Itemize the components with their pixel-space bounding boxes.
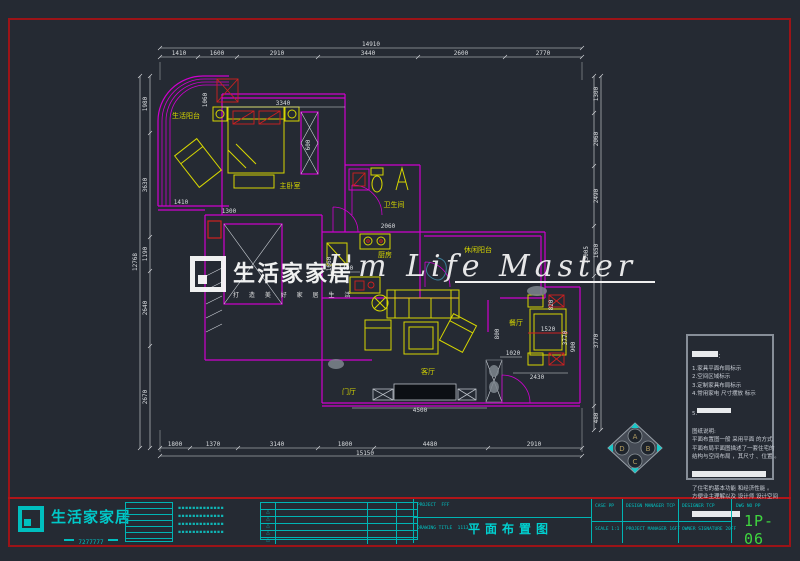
svg-text:3770: 3770 xyxy=(593,333,600,348)
svg-text:1060: 1060 xyxy=(202,92,209,107)
svg-text:1980: 1980 xyxy=(142,96,149,111)
notes-line: 了住宅的基本功能 和经济性能 。 xyxy=(692,485,768,493)
svg-text:4480: 4480 xyxy=(423,441,438,448)
redacted-block xyxy=(697,408,731,413)
svg-text:3630: 3630 xyxy=(142,177,149,192)
titleblock-brand-text: 生活家家居 xyxy=(51,506,131,527)
legend-item: 1.家具平面布局标示 xyxy=(692,365,768,373)
dash-decor xyxy=(64,539,74,541)
divider xyxy=(731,499,732,543)
notes-line: 平面布置图一般 采用平面 的方式 xyxy=(692,436,768,444)
label-living: 客厅 xyxy=(421,367,435,376)
watermark-tagline: 打 造 美 好 家 居 生 活 xyxy=(233,290,354,299)
elevation-marker: A B C D xyxy=(608,423,662,473)
svg-text:3140: 3140 xyxy=(270,441,285,448)
svg-text:D: D xyxy=(619,445,624,453)
label-master-bedroom: 主卧室 xyxy=(280,181,301,190)
legend-item: 2.空间区域标示 xyxy=(692,373,768,381)
revision-mark: △ xyxy=(261,517,276,523)
svg-text:1800: 1800 xyxy=(168,441,183,448)
cells-midline xyxy=(591,521,731,522)
cad-sheet: 生活阳台 主卧室 卫生间 厨房 休闲阳台 餐厅 客厅 门厅 14910 xyxy=(0,0,800,561)
svg-text:2060: 2060 xyxy=(381,223,396,230)
redacted-block xyxy=(692,471,766,477)
svg-text:1190: 1190 xyxy=(142,246,149,261)
svg-text:800: 800 xyxy=(494,328,501,339)
label-foyer: 门厅 xyxy=(342,387,356,396)
dash-decor xyxy=(108,539,118,541)
svg-text:1800: 1800 xyxy=(338,441,353,448)
dim-bottom-total: 15150 xyxy=(356,450,374,457)
svg-text:2490: 2490 xyxy=(593,188,600,203)
svg-text:2910: 2910 xyxy=(270,50,285,57)
titleblock-brand-section: 生活家家居 7277777 xyxy=(18,506,131,548)
svg-text:1520: 1520 xyxy=(541,326,556,333)
revision-mark: △ xyxy=(261,510,276,516)
svg-text:2430: 2430 xyxy=(530,374,545,381)
label-dining: 餐厅 xyxy=(509,318,523,327)
titleblock-logo-icon xyxy=(18,506,44,532)
titleblock-company-info: ▪▪▪▪▪▪▪▪▪▪▪▪▪ ▪▪▪▪▪▪▪▪▪▪▪▪▪ ▪▪▪▪▪▪▪▪▪▪▪▪… xyxy=(178,505,252,537)
svg-text:2640: 2640 xyxy=(142,300,149,315)
company-info-line: ▪▪▪▪▪▪▪▪▪▪▪▪▪ xyxy=(178,505,252,513)
legend-item: 4.常用家电 尺寸摆放 标示 xyxy=(692,390,768,398)
brand-logo-icon xyxy=(190,256,226,292)
watermark-script: I'm Life Master xyxy=(328,249,637,284)
svg-text:C: C xyxy=(633,458,638,466)
svg-text:3440: 3440 xyxy=(361,50,376,57)
revision-mark: △ xyxy=(261,531,276,537)
tv-unit xyxy=(373,384,476,400)
svg-text:2600: 2600 xyxy=(454,50,469,57)
drawing-number: 1P-06 xyxy=(744,512,791,548)
svg-text:1370: 1370 xyxy=(206,441,221,448)
label-living-balcony: 生活阳台 xyxy=(172,111,200,120)
company-info-line: ▪▪▪▪▪▪▪▪▪▪▪▪▪ xyxy=(178,521,252,529)
svg-text:1410: 1410 xyxy=(174,199,189,206)
svg-text:1020: 1020 xyxy=(506,350,521,357)
notes-panel: ： 1.家具平面布局标示 2.空间区域标示 3.定制家具布局标示 4.常用家电 … xyxy=(686,334,774,480)
svg-text:600: 600 xyxy=(305,139,312,150)
svg-text:3340: 3340 xyxy=(276,100,291,107)
notes-line: 平面布局平面图描述了一套住宅的 xyxy=(692,445,768,453)
redacted-block xyxy=(692,351,718,357)
notes-line: 结构与空间布局 ，其尺寸 、位置 。 xyxy=(692,453,768,461)
title-block: 生活家家居 7277777 ▪▪▪▪▪ ▪▪▪▪▪▪▪▪▪▪▪▪▪ ▪▪▪▪▪▪… xyxy=(8,499,791,543)
svg-text:2670: 2670 xyxy=(142,389,149,404)
svg-text:4500: 4500 xyxy=(413,407,428,414)
svg-text:480: 480 xyxy=(593,412,600,423)
label-bathroom: 卫生间 xyxy=(384,200,405,209)
drawing-title-cn: 平面布置图 xyxy=(468,520,553,537)
revision-mark: △ xyxy=(261,524,276,530)
svg-text:2770: 2770 xyxy=(536,50,551,57)
legend-item: 3.定制家具布局标示 xyxy=(692,382,768,390)
svg-text:2910: 2910 xyxy=(527,441,542,448)
svg-text:A: A xyxy=(633,433,638,441)
dim-left-total: 12768 xyxy=(132,253,139,271)
project-section: PROJECT FFF DRAWING TITLE 1113 平面布置图 xyxy=(413,499,591,543)
svg-text:2060: 2060 xyxy=(593,131,600,146)
svg-text:820: 820 xyxy=(548,299,555,310)
svg-text:900: 900 xyxy=(570,341,577,352)
dim-top-total: 14910 xyxy=(362,41,380,48)
svg-text:1300: 1300 xyxy=(593,86,600,101)
svg-text:1300: 1300 xyxy=(222,208,237,215)
company-info-line: ▪▪▪▪▪▪▪▪▪▪▪▪▪ xyxy=(178,513,252,521)
company-info-line: ▪▪▪▪▪▪▪▪▪▪▪▪▪ xyxy=(178,529,252,537)
notes-title: 图纸说明: xyxy=(692,428,768,436)
titleblock-mini-table: ▪▪▪▪▪ xyxy=(125,502,173,542)
svg-text:3770: 3770 xyxy=(562,330,569,345)
svg-text:1410: 1410 xyxy=(172,50,187,57)
svg-text:B: B xyxy=(646,445,651,453)
revision-table: △ △ △ △ △ xyxy=(260,502,418,540)
svg-text:1600: 1600 xyxy=(210,50,225,57)
revision-mark: △ xyxy=(261,538,276,544)
titleblock-phone: 7277777 xyxy=(78,539,103,546)
watermark-underline xyxy=(455,281,655,283)
